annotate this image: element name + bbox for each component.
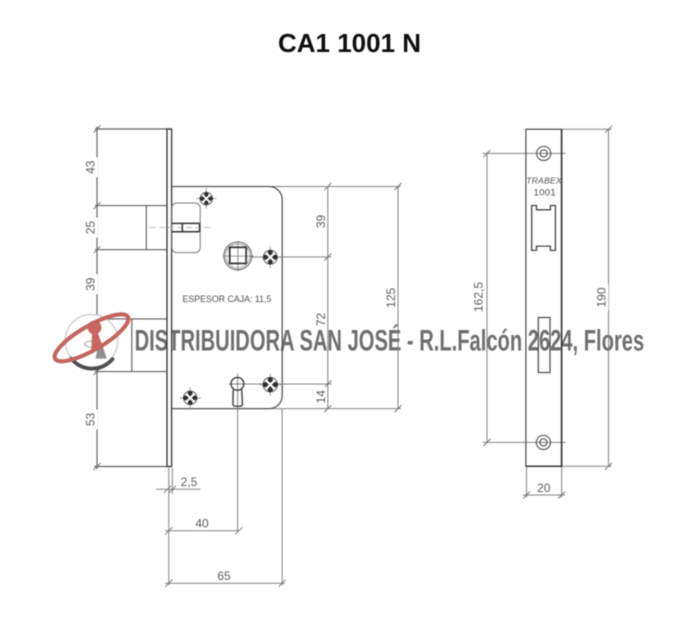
svg-text:40: 40 [195,517,209,531]
svg-text:53: 53 [84,413,98,427]
svg-text:20: 20 [537,481,551,495]
svg-text:43: 43 [84,160,98,174]
svg-text:25: 25 [84,221,98,235]
svg-text:39: 39 [314,215,328,229]
svg-text:2,5: 2,5 [181,475,198,489]
svg-text:14: 14 [314,390,328,404]
svg-text:DISTRIBUIDORA SAN JOSÉ - R.L.F: DISTRIBUIDORA SAN JOSÉ - R.L.Falcón 2624… [135,324,645,358]
svg-text:1001: 1001 [534,187,557,198]
svg-text:TRABEX: TRABEX [526,176,562,186]
svg-text:125: 125 [384,287,398,307]
svg-text:190: 190 [595,287,609,307]
svg-text:72: 72 [314,313,328,327]
svg-text:CA1 1001 N: CA1 1001 N [278,28,421,58]
svg-text:65: 65 [217,569,231,583]
svg-text:162,5: 162,5 [472,282,486,312]
svg-text:39: 39 [84,277,98,291]
svg-text:ESPESOR CAJA: 11,5: ESPESOR CAJA: 11,5 [183,294,272,304]
